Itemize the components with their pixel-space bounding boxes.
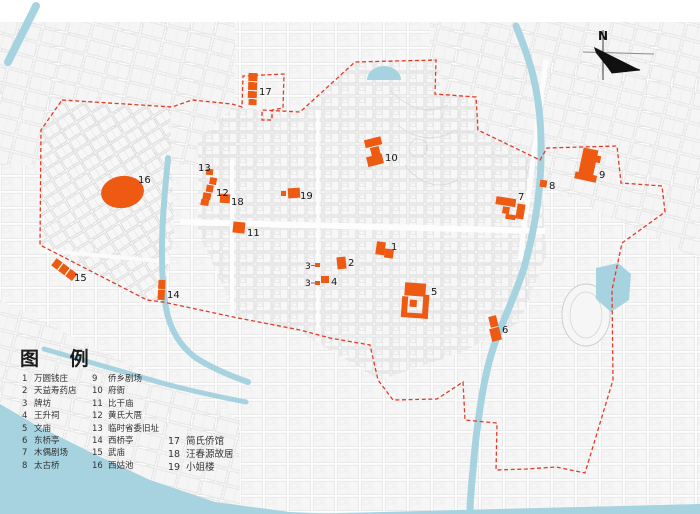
legend-item-6: 6东桥亭 [22,435,77,447]
legend-item-3: 3牌坊 [22,398,77,410]
label-8: 8 [549,181,555,192]
site-4 [321,276,329,283]
legend-item-17: 17简氏侨馆 [168,435,234,448]
site-5 [401,282,430,319]
heritage-map-page: 1 2 3 3 4 5 6 7 8 9 10 11 12 13 14 15 16… [0,0,700,514]
legend-item-11: 11比干庙 [92,398,159,410]
label-1: 1 [391,242,397,253]
label-16: 16 [138,175,151,186]
site-3a [315,263,320,267]
site-3b [315,281,320,285]
legend-item-14: 14西桥亭 [92,435,159,447]
label-14: 14 [167,290,180,301]
label-17: 17 [259,87,272,98]
site-11 [232,221,245,233]
label-3b: 3 [305,279,311,289]
legend-item-5: 5文庙 [22,423,77,435]
legend-item-2: 2天益寿药店 [22,385,77,397]
site-19b [281,191,286,196]
site-8 [539,180,547,188]
label-4: 4 [331,277,337,288]
legend-item-7: 7木偶剧场 [22,447,77,459]
legend-item-12: 12黄氏大厝 [92,410,159,422]
label-10: 10 [385,153,398,164]
legend-item-9: 9侨乡剧场 [92,373,159,385]
label-11: 11 [247,228,260,239]
legend-item-18: 18汪春源故居 [168,448,234,461]
legend-item-16: 16西姑池 [92,460,159,472]
label-13: 13 [198,163,211,174]
label-12: 12 [216,188,229,199]
legend: 图 例 1万圆钱庄 2天益寿药店 3牌坊 4王升祠 5文庙 6东桥亭 7木偶剧场… [20,344,280,371]
label-3a: 3 [305,262,311,272]
label-2: 2 [348,258,354,269]
legend-column-2: 9侨乡剧场 10府衙 11比干庙 12黄氏大厝 13临时省委旧址 14西桥亭 1… [92,373,159,472]
label-15: 15 [74,273,87,284]
legend-item-1: 1万圆钱庄 [22,373,77,385]
legend-title: 图 例 [20,344,280,371]
north-label: N [598,29,608,43]
site-2 [336,257,346,270]
legend-item-15: 15武庙 [92,447,159,459]
legend-item-10: 10府衙 [92,385,159,397]
label-19: 19 [300,191,313,202]
legend-item-4: 4王升祠 [22,410,77,422]
legend-item-13: 13临时省委旧址 [92,423,159,435]
label-18: 18 [231,197,244,208]
label-7: 7 [518,192,524,203]
label-6: 6 [502,325,508,336]
site-17 [247,73,257,105]
legend-item-19: 19小姐楼 [168,461,234,474]
legend-column-1: 1万圆钱庄 2天益寿药店 3牌坊 4王升祠 5文庙 6东桥亭 7木偶剧场 8太古… [22,373,77,472]
legend-item-8: 8太古桥 [22,460,77,472]
site-19 [288,188,301,199]
legend-column-3: 17简氏侨馆 18汪春源故居 19小姐楼 [168,435,234,474]
label-5: 5 [431,287,437,298]
label-9: 9 [599,170,605,181]
